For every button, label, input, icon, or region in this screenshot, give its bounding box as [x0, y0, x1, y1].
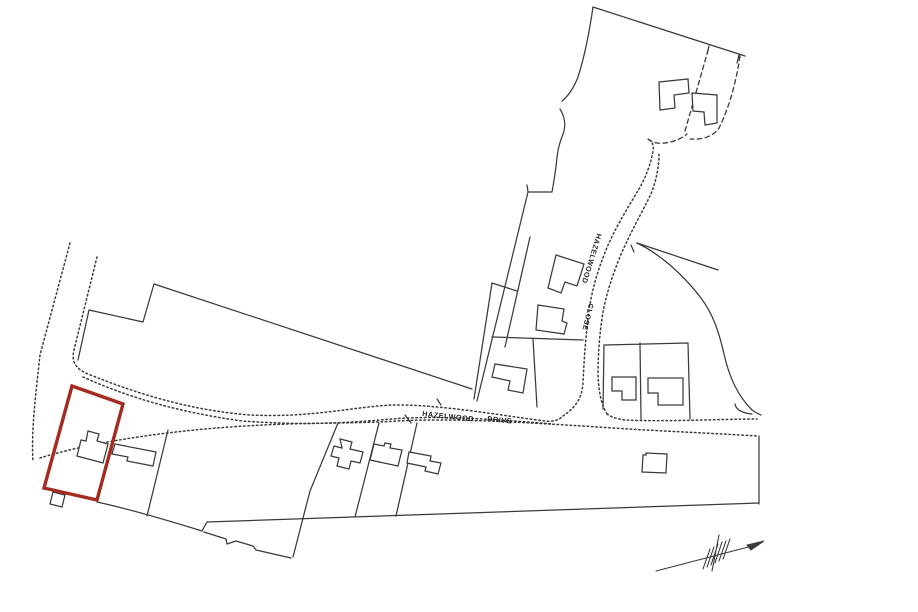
plot-division-line: [492, 337, 583, 340]
road-label-hazelwood-close-word2: CLOSE: [580, 303, 595, 332]
plot-division-line: [396, 423, 417, 516]
building-footprint-outbuilding: [50, 492, 65, 507]
building-footprint: [659, 79, 689, 110]
boundary-south: [97, 502, 759, 531]
plot-division-line: [293, 423, 338, 557]
boundary-top-north: [593, 7, 745, 56]
boundary-south-zigzag: [204, 532, 291, 558]
building-footprint: [370, 443, 402, 466]
building-footprint-subject-house: [77, 431, 108, 463]
boundary-diagonal: [505, 237, 530, 347]
north-arrow-icon: [656, 535, 764, 571]
road-label-hazelwood-close-word1: HAZELWOOD: [580, 232, 604, 284]
north-arrow-head: [747, 541, 764, 550]
building-footprint: [492, 364, 527, 393]
building-footprint: [536, 305, 567, 334]
boundary-spur: [637, 243, 718, 270]
site-plan-map: HAZELWOOD DRIVE HAZELWOOD CLOSE: [0, 0, 918, 612]
plot-division-line: [147, 430, 168, 516]
building-footprints: [50, 79, 717, 507]
dashed-track-hook: [648, 134, 687, 143]
building-footprint: [648, 378, 683, 405]
driveway-curve: [735, 404, 752, 414]
building-footprint: [692, 93, 717, 125]
boundary-tick: [737, 55, 739, 63]
north-arrow-shaft: [656, 545, 756, 571]
site-location-plan: HAZELWOOD DRIVE HAZELWOOD CLOSE: [0, 0, 918, 612]
building-footprint: [331, 439, 363, 469]
plot-division-line: [533, 339, 537, 407]
road-edge-drive-north: [73, 257, 563, 421]
road-label-hazelwood-drive-word2: DRIVE: [487, 414, 513, 426]
boundary-top-west-lower: [527, 109, 565, 192]
building-footprint: [612, 377, 636, 400]
boundary-top-west: [562, 7, 593, 101]
building-footprint: [548, 255, 584, 293]
building-footprint: [407, 452, 441, 474]
road-edges: [33, 139, 757, 462]
building-footprint: [642, 453, 667, 473]
road-label-hazelwood-drive-word1: HAZELWOOD: [422, 409, 475, 423]
field-boundary-west: [78, 284, 472, 389]
road-edge-close-east: [598, 152, 659, 414]
building-footprint: [112, 444, 156, 466]
road-edge-drive-north-east: [607, 414, 757, 421]
boundary-diagonal: [474, 283, 492, 399]
plot-division-line: [355, 423, 379, 517]
parcel-boundaries: [78, 7, 761, 558]
boundary-tick: [631, 245, 634, 252]
road-edge-west-lane: [33, 243, 70, 462]
